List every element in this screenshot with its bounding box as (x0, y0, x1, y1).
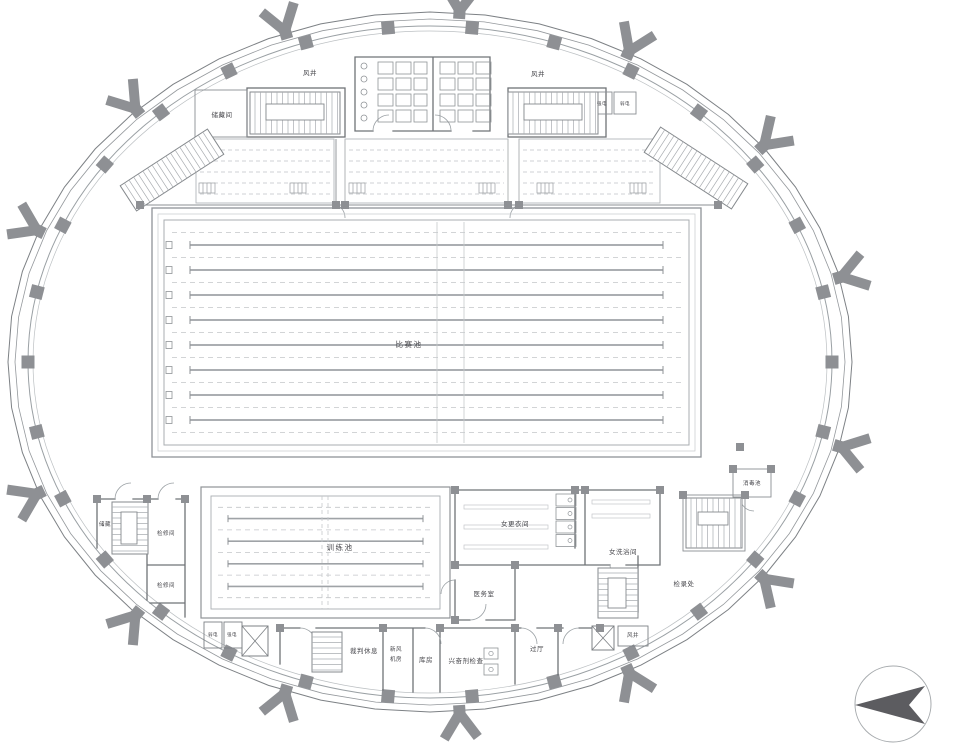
natatorium-floor-plan: 储藏间 风井 风井 强电 弱电 比赛池 训练池 储藏 检修间 检修间 弱电 强电… (0, 0, 960, 750)
label-disinfection-pool: 消毒池 (743, 479, 761, 487)
label-call-room: 检录处 (674, 579, 695, 588)
label-medical-room: 医务室 (474, 589, 495, 598)
label-store-room: 库房 (419, 655, 433, 664)
label-referee-lounge: 裁判休息 (350, 646, 378, 655)
label-strong-power-top: 强电 (597, 100, 607, 107)
label-strong-power-bottom: 强电 (227, 631, 237, 638)
label-air-shaft-bottom-right: 风井 (627, 631, 639, 639)
label-training-pool: 训练池 (327, 542, 354, 552)
stairs (112, 92, 748, 672)
north-arrow (855, 666, 931, 742)
label-competition-pool: 比赛池 (396, 339, 423, 349)
label-storage-left: 储藏 (99, 520, 111, 528)
label-air-shaft-top-right: 风井 (531, 69, 545, 78)
toilet-door-arcs (373, 115, 451, 131)
label-women-shower-room: 女洗浴间 (609, 547, 637, 556)
floor-plan-canvas: 储藏间 风井 风井 强电 弱电 比赛池 训练池 储藏 检修间 检修间 弱电 强电… (0, 0, 960, 750)
grandstands (196, 139, 660, 203)
label-storage-room-top: 储藏间 (212, 110, 233, 119)
label-doping-control: 兴奋剂检查 (449, 656, 484, 665)
label-maintenance-room-1: 检修间 (157, 529, 175, 537)
label-air-shaft-top-left: 风井 (303, 68, 317, 77)
label-maintenance-room-2: 检修间 (157, 581, 175, 589)
label-fresh-air-line1: 新风 (390, 645, 402, 653)
label-weak-power-top: 弱电 (620, 100, 630, 107)
label-weak-power-bottom: 弱电 (208, 631, 218, 638)
label-fresh-air-line2: 机房 (390, 655, 402, 663)
label-vestibule: 过厅 (530, 644, 544, 653)
label-women-changing-room: 女更衣间 (501, 519, 529, 528)
vomitory-door-arcs (337, 205, 518, 218)
pools (152, 208, 701, 618)
